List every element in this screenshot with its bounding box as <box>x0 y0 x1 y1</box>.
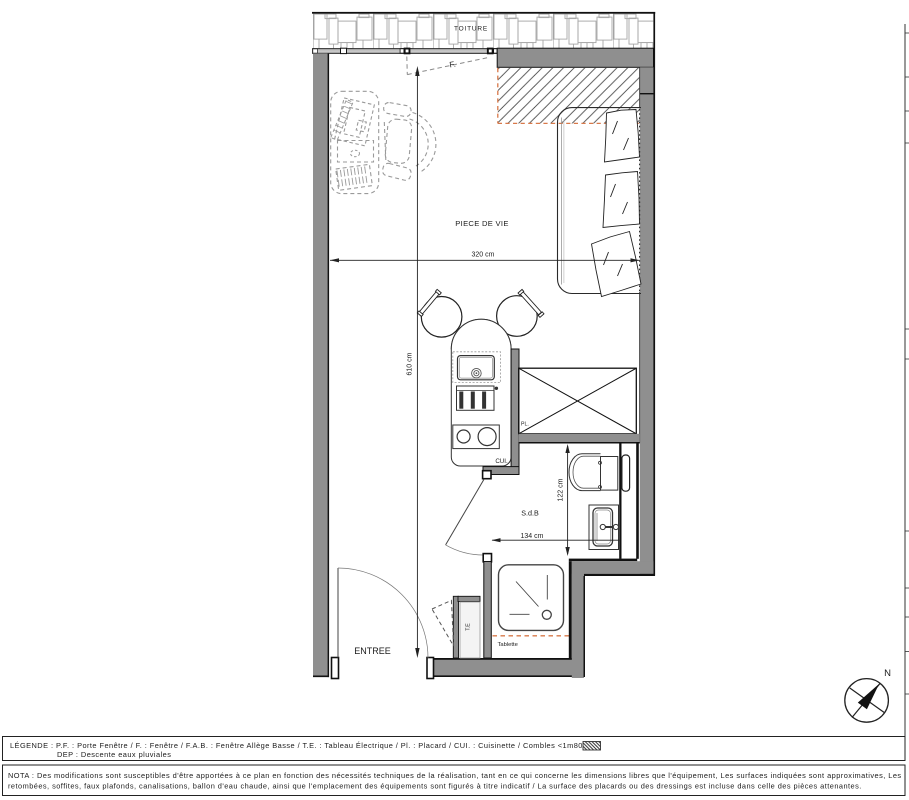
svg-text:DEP : Descente eaux pluviales: DEP : Descente eaux pluviales <box>57 750 171 759</box>
svg-text:TOITURE: TOITURE <box>454 26 488 33</box>
svg-text:S.d.B: S.d.B <box>521 509 539 518</box>
svg-text:610 cm: 610 cm <box>407 352 414 375</box>
svg-text:Tablette: Tablette <box>498 642 518 648</box>
svg-text:PL.: PL. <box>521 422 529 428</box>
svg-text:ENTREE: ENTREE <box>354 646 391 656</box>
svg-text:CUI.: CUI. <box>495 458 508 465</box>
svg-text:retombées, soffites, faux plaf: retombées, soffites, faux plafonds, cana… <box>8 782 862 791</box>
svg-text:N: N <box>884 668 891 679</box>
svg-text:122 cm: 122 cm <box>558 478 565 501</box>
svg-text:NOTA : Des modifications sont: NOTA : Des modifications sont susceptibl… <box>8 771 902 780</box>
svg-text:PIECE DE VIE: PIECE DE VIE <box>455 219 508 228</box>
svg-text:LÉGENDE : P.F. : Porte Fenêtre: LÉGENDE : P.F. : Porte Fenêtre / F. : Fe… <box>10 741 583 750</box>
svg-text:320 cm: 320 cm <box>472 252 495 259</box>
svg-text:T.E: T.E <box>466 623 472 631</box>
svg-text:134 cm: 134 cm <box>521 533 544 540</box>
svg-text:F.: F. <box>449 60 457 70</box>
